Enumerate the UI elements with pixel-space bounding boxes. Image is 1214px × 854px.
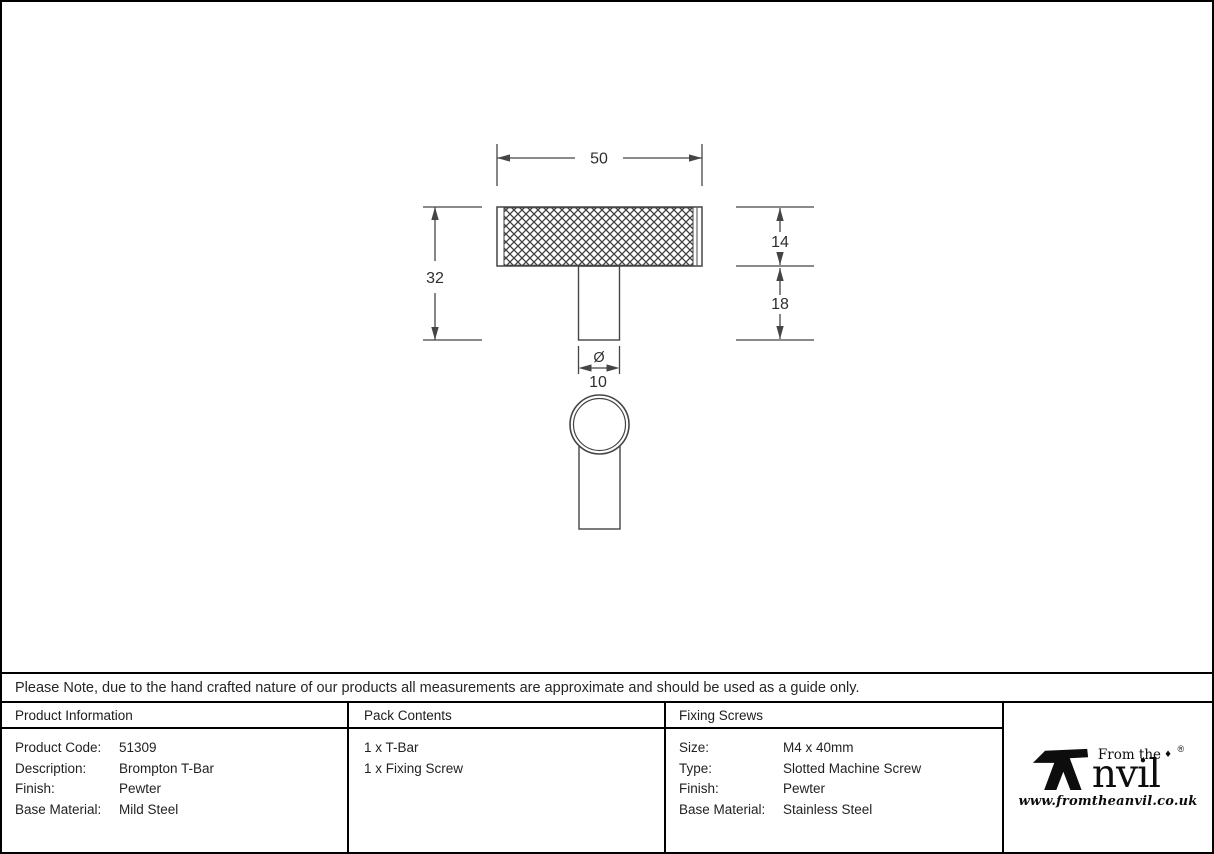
row-label: Size:	[679, 738, 783, 759]
row-value: M4 x 40mm	[783, 738, 854, 759]
logo-name: nvil	[1092, 759, 1172, 791]
anvil-icon	[1032, 746, 1090, 791]
table-row: Size: M4 x 40mm	[679, 738, 1002, 759]
anvil-logo: From the♦ ® nvil www.fromtheanvil.co.uk	[1019, 746, 1198, 809]
product-information-column: Product Information Product Code: 51309 …	[2, 703, 349, 852]
table-row: Base Material: Mild Steel	[15, 800, 347, 821]
registered-mark: ®	[1177, 744, 1184, 754]
fixing-screws-header: Fixing Screws	[666, 703, 1002, 729]
note-text: Please Note, due to the hand crafted nat…	[15, 680, 859, 696]
diamond-icon: ♦	[1164, 750, 1172, 760]
dim-label-diameter-value: 10	[589, 374, 607, 391]
row-value: Pewter	[119, 779, 161, 800]
row-label: Base Material:	[679, 800, 783, 821]
row-value: 51309	[119, 738, 157, 759]
row-label: Finish:	[15, 779, 119, 800]
pack-contents-header: Pack Contents	[349, 703, 664, 729]
dim-label-diameter-symbol: Ø	[593, 350, 604, 366]
info-table: Product Information Product Code: 51309 …	[2, 703, 1212, 852]
row-label: Description:	[15, 759, 119, 780]
fixing-screws-column: Fixing Screws Size: M4 x 40mm Type: Slot…	[666, 703, 1004, 852]
row-label: Product Code:	[15, 738, 119, 759]
list-item: 1 x Fixing Screw	[364, 759, 664, 780]
product-spec-sheet: 50 32 14 18 Ø 10 Please Note, due to the…	[0, 0, 1214, 854]
table-row: Base Material: Stainless Steel	[679, 800, 1002, 821]
pack-contents-column: Pack Contents 1 x T-Bar 1 x Fixing Screw	[349, 703, 666, 852]
technical-drawing: 50 32 14 18 Ø 10	[2, 2, 1212, 672]
row-label: Base Material:	[15, 800, 119, 821]
dim-label-bar-height: 14	[771, 234, 789, 251]
row-value: Slotted Machine Screw	[783, 759, 921, 780]
logo-wordmark: From the♦ ® nvil	[1032, 746, 1184, 791]
table-row: Product Code: 51309	[15, 738, 347, 759]
row-value: Stainless Steel	[783, 800, 872, 821]
side-view	[570, 395, 629, 529]
row-value: Pewter	[783, 779, 825, 800]
row-value: Brompton T-Bar	[119, 759, 214, 780]
bar-end-outer	[570, 395, 629, 454]
dim-label-stem-height: 18	[771, 296, 789, 313]
logo-text: From the♦ ® nvil	[1092, 748, 1184, 791]
list-item: 1 x T-Bar	[364, 738, 664, 759]
table-row: Description: Brompton T-Bar	[15, 759, 347, 780]
fixing-screws-body: Size: M4 x 40mm Type: Slotted Machine Sc…	[666, 729, 1002, 820]
dim-label-total-height: 32	[426, 270, 444, 287]
product-information-header: Product Information	[2, 703, 347, 729]
row-value: Mild Steel	[119, 800, 178, 821]
stem-front	[579, 266, 620, 340]
brand-column: From the♦ ® nvil www.fromtheanvil.co.uk	[1004, 703, 1212, 852]
row-label: Type:	[679, 759, 783, 780]
front-view	[423, 144, 814, 374]
info-panel: Please Note, due to the hand crafted nat…	[2, 672, 1212, 852]
product-information-body: Product Code: 51309 Description: Brompto…	[2, 729, 347, 820]
bar-knurling	[504, 208, 693, 265]
table-row: Finish: Pewter	[679, 779, 1002, 800]
dim-label-width: 50	[590, 151, 608, 168]
pack-contents-body: 1 x T-Bar 1 x Fixing Screw	[349, 729, 664, 779]
measurement-note: Please Note, due to the hand crafted nat…	[2, 672, 1212, 703]
table-row: Finish: Pewter	[15, 779, 347, 800]
row-label: Finish:	[679, 779, 783, 800]
table-row: Type: Slotted Machine Screw	[679, 759, 1002, 780]
